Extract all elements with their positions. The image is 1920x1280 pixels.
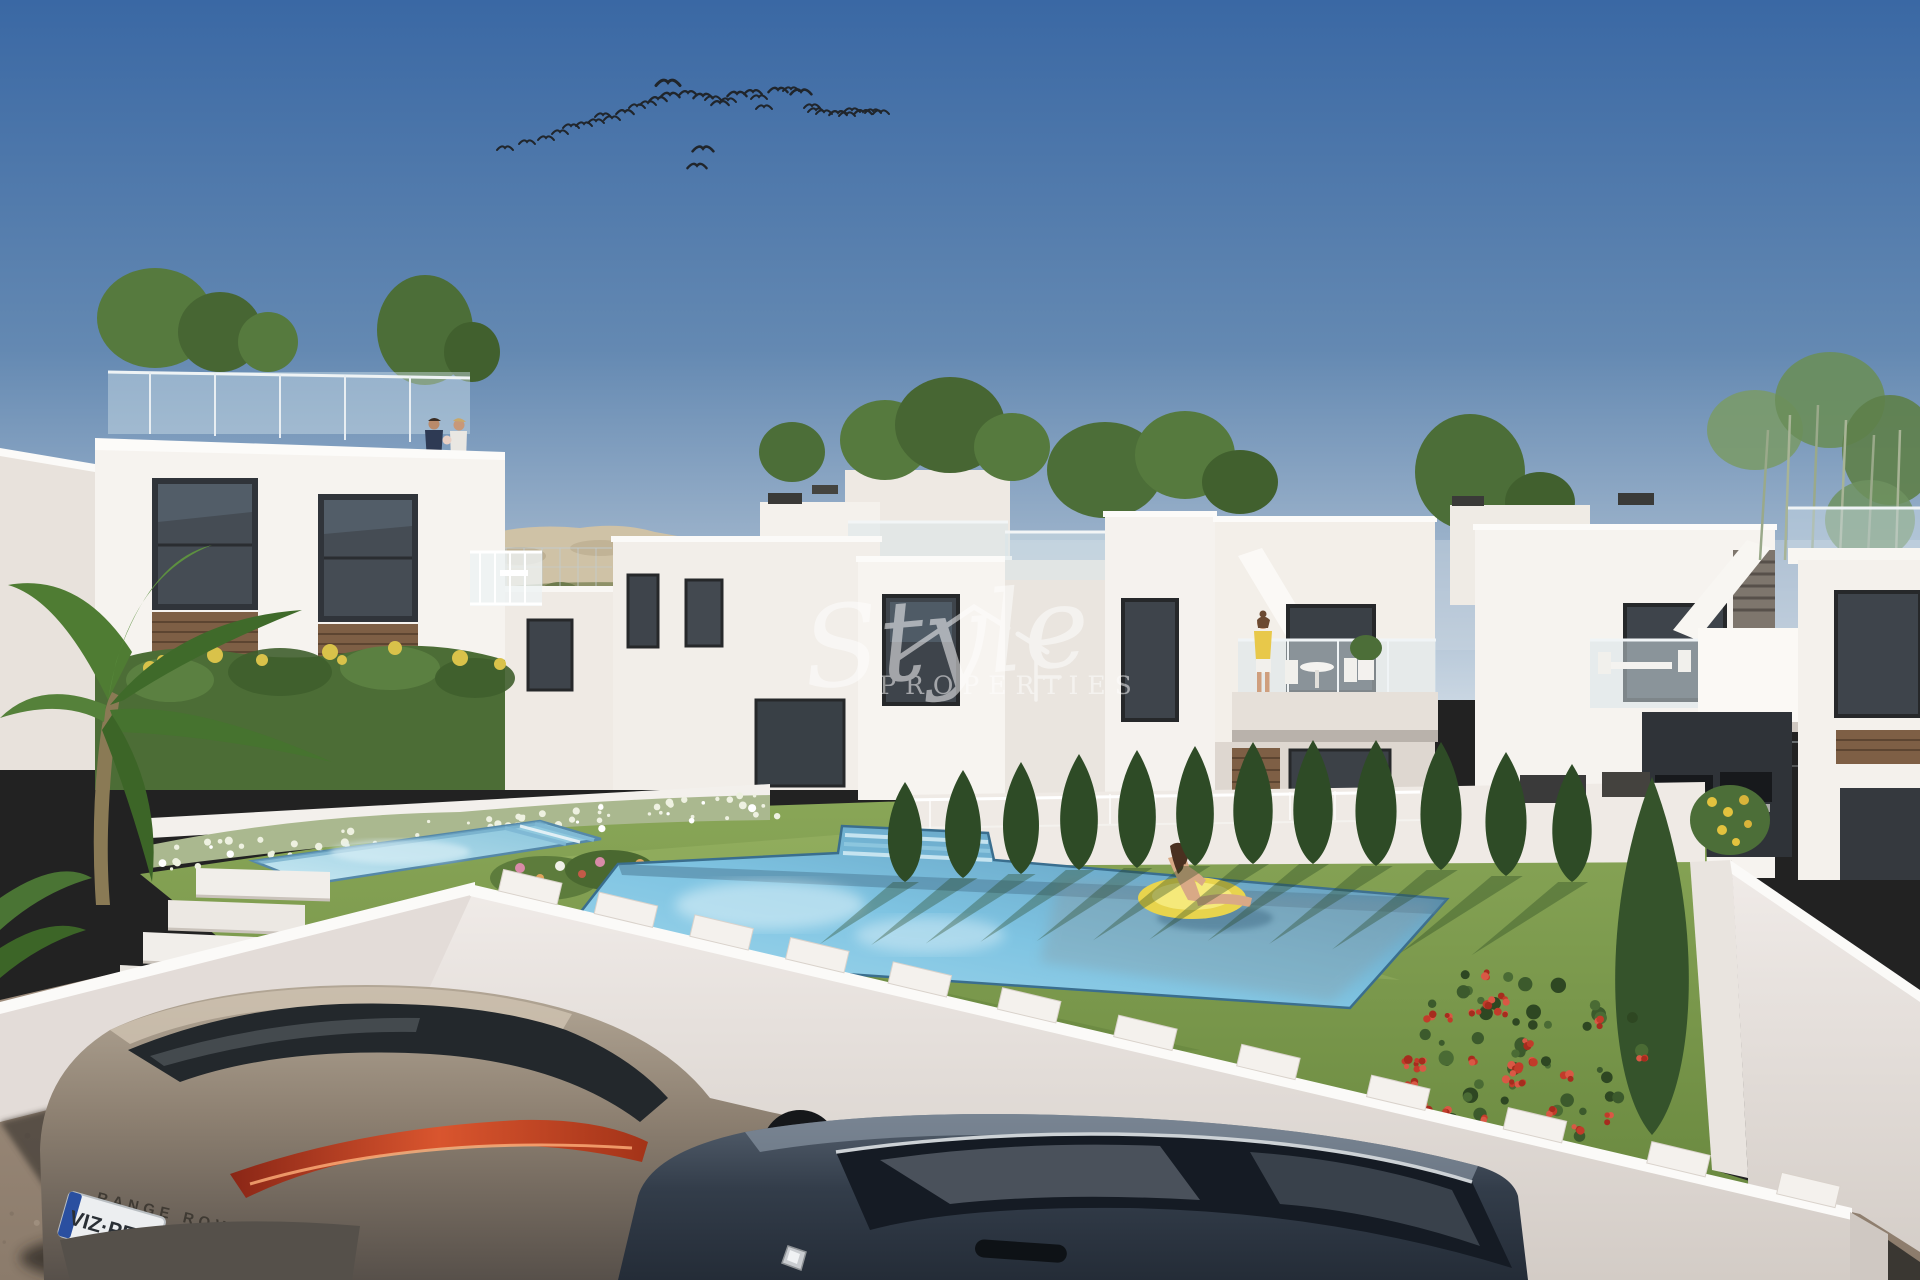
bush-red-flower: [1476, 1009, 1482, 1015]
hedge-blossom: [427, 820, 430, 823]
render-canvas: RANGE ROVER VIZ·PEOP: [0, 0, 1920, 1280]
hedge-blossom: [774, 813, 780, 819]
hedge-blossom: [648, 812, 651, 815]
hedge-blossom: [607, 814, 610, 817]
hedge-blossom: [174, 859, 181, 866]
hedge-blossom: [739, 801, 747, 809]
bush-red-flower: [1519, 1080, 1526, 1087]
bush-red-flower: [1485, 1002, 1493, 1010]
bush-foliage: [1597, 1067, 1603, 1073]
property-render-image: RANGE ROVER VIZ·PEOP: [0, 0, 1920, 1280]
bush-red-flower: [1549, 1106, 1555, 1112]
hedge-blossom: [569, 817, 575, 823]
hedge-blossom: [753, 794, 756, 797]
bush-foliage: [1627, 1012, 1638, 1023]
bush-red-flower: [1502, 1012, 1508, 1018]
bush-foliage: [1511, 1049, 1519, 1057]
bush-foliage: [1428, 999, 1436, 1007]
bush-red-flower: [1529, 1058, 1537, 1066]
bush-foliage: [1501, 1096, 1509, 1104]
hedge-blossom: [598, 811, 602, 815]
bush-foliage: [1601, 1072, 1613, 1084]
hedge-blossom: [268, 851, 275, 858]
hedge-blossom: [539, 810, 546, 817]
hedge-blossom: [681, 797, 687, 803]
bush-foliage: [1512, 1018, 1520, 1026]
bush-red-flower: [1576, 1127, 1584, 1135]
bush-red-flower: [1423, 1015, 1430, 1022]
bush-red-flower: [1404, 1064, 1409, 1069]
potted-plant: [1350, 635, 1382, 661]
hedge-blossom: [467, 821, 470, 824]
bush-red-flower: [1419, 1058, 1426, 1065]
left-house-balcony: [470, 552, 542, 606]
watermark-sub-text: PROPERTIES: [879, 671, 1141, 700]
bush-red-flower: [1527, 1040, 1534, 1047]
hedge-blossom: [753, 812, 759, 818]
bush-foliage: [1560, 1093, 1574, 1107]
hedge-blossom: [239, 843, 244, 848]
bush-red-flower: [1510, 1070, 1516, 1076]
bush-red-flower: [1509, 1079, 1514, 1084]
right-garden: [1690, 785, 1770, 855]
hedge-blossom: [315, 843, 322, 850]
bush-red-flower: [1604, 1119, 1610, 1125]
hedge-blossom: [689, 818, 695, 824]
bush-red-flower: [1604, 1112, 1609, 1117]
bush-red-flower: [1448, 1017, 1453, 1022]
bush-red-flower: [1502, 1075, 1510, 1083]
bush-foliage: [1526, 1005, 1541, 1020]
bush-foliage: [1612, 1091, 1624, 1103]
bush-red-flower: [1404, 1055, 1413, 1064]
gravel-speckle: [34, 1220, 40, 1226]
yellow-top: [1254, 631, 1272, 661]
gravel-speckle: [3, 1240, 6, 1243]
hedge-blossom: [226, 840, 230, 844]
hedge-blossom: [209, 845, 213, 849]
hedge-blossom: [598, 825, 605, 832]
hedge-blossom: [659, 811, 663, 815]
bush-foliage: [1579, 1108, 1586, 1115]
hedge-blossom: [515, 814, 521, 820]
hedge-blossom: [218, 839, 223, 844]
bush-foliage: [1472, 1032, 1484, 1044]
bush-foliage: [1463, 1092, 1473, 1102]
bush-foliage: [1518, 977, 1532, 991]
hedge-blossom: [748, 804, 756, 812]
hedge-blossom: [666, 812, 669, 815]
bush-red-flower: [1469, 1059, 1476, 1066]
hedge-blossom: [522, 815, 526, 819]
hedge-blossom: [174, 845, 179, 850]
bush-foliage: [1503, 972, 1513, 982]
bush-foliage: [1528, 1020, 1538, 1030]
bush-red-flower: [1571, 1124, 1576, 1129]
hedge-blossom: [576, 820, 579, 823]
far-right-house: [1788, 508, 1920, 880]
hedge-blossom: [761, 804, 765, 808]
bush-foliage: [1439, 1050, 1454, 1065]
hedge-blossom: [291, 840, 298, 847]
hedge-blossom: [486, 816, 492, 822]
hedge-blossom: [573, 807, 580, 814]
gravel-speckle: [10, 1211, 14, 1215]
bush-foliage: [1420, 1029, 1431, 1040]
hedge-blossom: [597, 818, 603, 824]
bush-red-flower: [1469, 1010, 1475, 1016]
balcony-slab: [1232, 692, 1438, 732]
bush-foliage: [1474, 1079, 1484, 1089]
hedge-blossom: [170, 867, 173, 870]
hedge-blossom: [727, 796, 734, 803]
bush-foliage: [1439, 1040, 1445, 1046]
roof-terrace-glass: [108, 372, 470, 434]
hedge-blossom: [701, 801, 705, 805]
bush-foliage: [1544, 1021, 1552, 1029]
bush-red-flower: [1419, 1065, 1426, 1072]
bush-red-flower: [1494, 1008, 1502, 1016]
bush-red-flower: [1445, 1013, 1450, 1018]
hedge-blossom: [715, 797, 719, 801]
hedge-blossom: [227, 850, 234, 857]
bush-foliage: [1461, 970, 1470, 979]
bush-red-flower: [1429, 1011, 1436, 1018]
hedge-blossom: [257, 837, 263, 843]
bush-foliage: [1541, 1056, 1551, 1066]
bush-red-flower: [1641, 1056, 1647, 1062]
bush-foliage: [1590, 1000, 1601, 1011]
hedge-blossom: [736, 792, 743, 799]
bush-red-flower: [1481, 972, 1489, 980]
left-house-window-2: [318, 494, 418, 668]
hedge-blossom: [204, 839, 211, 846]
hedge-blossom: [725, 816, 729, 820]
hedge-blossom: [654, 804, 661, 811]
bush-foliage: [1583, 1022, 1592, 1031]
bush-foliage: [1551, 978, 1566, 993]
hedge-blossom: [666, 799, 674, 807]
bush-red-flower: [1568, 1076, 1574, 1082]
villa-mid-left: [503, 586, 615, 790]
bush-foliage: [1457, 985, 1470, 998]
hedge-blossom: [598, 804, 603, 809]
bush-red-flower: [1503, 999, 1510, 1006]
hedge-blossom: [341, 830, 344, 833]
bush-red-flower: [1596, 1016, 1604, 1024]
hedge-blossom: [159, 859, 167, 867]
bush-red-flower: [1597, 1023, 1603, 1029]
hedge-blossom: [347, 828, 354, 835]
